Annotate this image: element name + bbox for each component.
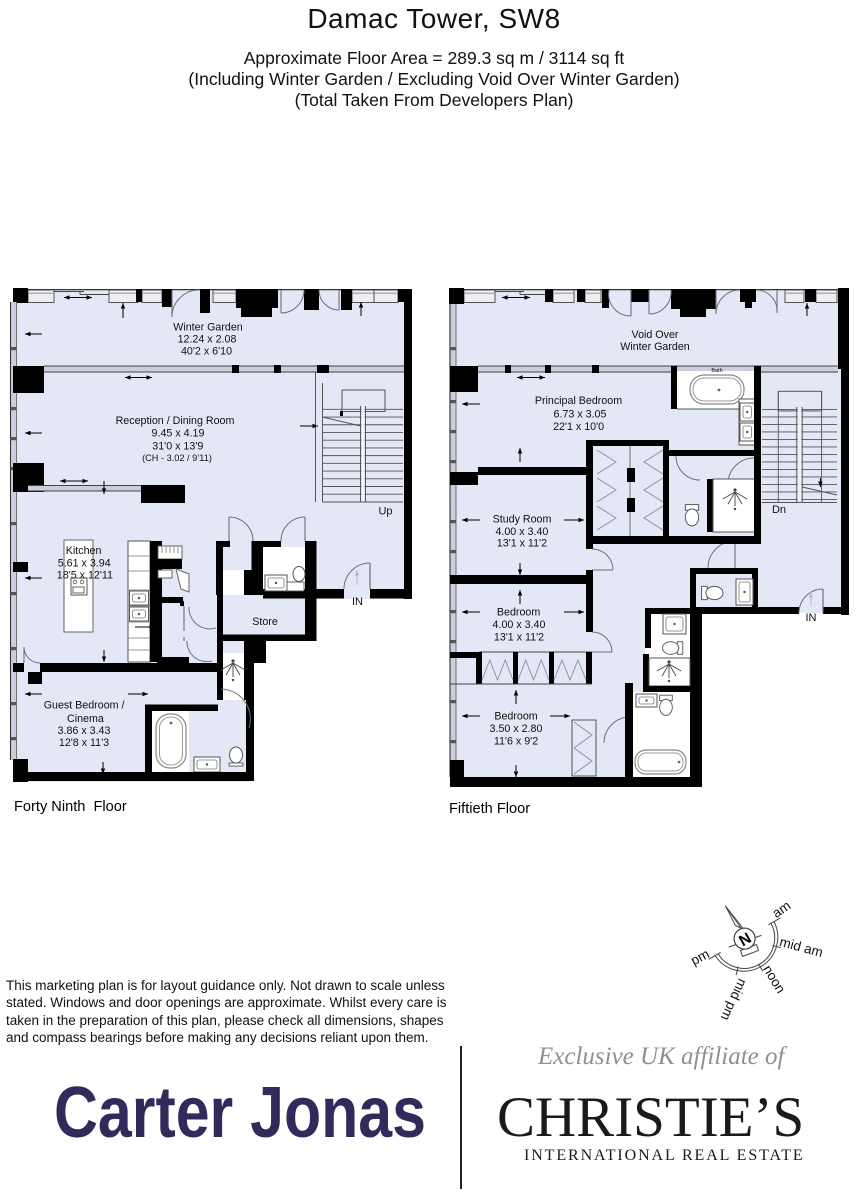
svg-text:12.24 x 2.08: 12.24 x 2.08 [178,334,237,346]
svg-text:Reception / Dining Room: Reception / Dining Room [116,415,235,427]
svg-text:22'1 x 10'0: 22'1 x 10'0 [553,421,604,433]
svg-text:Cinema: Cinema [67,713,104,725]
svg-text:4.00 x 3.40: 4.00 x 3.40 [493,619,546,631]
svg-text:Guest Bedroom /: Guest Bedroom / [44,699,125,711]
svg-text:mid pm: mid pm [718,976,750,1022]
svg-text:Void Over: Void Over [632,329,679,341]
svg-text:12'8 x 11'3: 12'8 x 11'3 [59,737,109,749]
svg-text:Winter Garden: Winter Garden [620,341,690,353]
svg-text:Forty Ninth Floor: Forty Ninth Floor [14,799,127,815]
svg-text:Dn: Dn [772,504,786,516]
svg-text:11'6 x 9'2: 11'6 x 9'2 [494,736,538,748]
svg-text:13'1 x 11'2: 13'1 x 11'2 [494,632,544,644]
svg-text:Bedroom: Bedroom [497,607,540,619]
svg-text:9.45 x 4.19: 9.45 x 4.19 [152,428,205,440]
svg-text:Store: Store [252,616,278,628]
svg-text:mid am: mid am [778,934,825,960]
svg-text:pm: pm [688,946,712,968]
svg-text:Up: Up [378,506,392,518]
svg-text:3.50 x 2.80: 3.50 x 2.80 [490,723,543,735]
svg-text:6.73 x 3.05: 6.73 x 3.05 [554,409,607,421]
svg-text:31'0 x 13'9: 31'0 x 13'9 [152,440,203,452]
svg-text:Study Room: Study Room [493,514,552,526]
svg-text:noon: noon [760,962,788,995]
svg-text:13'1 x 11'2: 13'1 x 11'2 [497,538,547,550]
svg-text:Kitchen: Kitchen [66,545,102,557]
svg-text:(CH - 3.02 / 9’11): (CH - 3.02 / 9’11) [142,453,212,463]
svg-text:IN: IN [806,612,817,624]
svg-text:18'5 x 12'11: 18'5 x 12'11 [57,570,113,582]
svg-text:IN: IN [352,596,363,608]
svg-text:Bedroom: Bedroom [494,711,537,723]
svg-text:Fiftieth Floor: Fiftieth Floor [449,801,530,817]
svg-text:Winter Garden: Winter Garden [173,322,243,334]
svg-text:3.86 x 3.43: 3.86 x 3.43 [58,725,111,737]
svg-text:40'2 x 6'10: 40'2 x 6'10 [181,346,232,358]
svg-text:Bath: Bath [711,368,722,374]
svg-text:5.61 x 3.94: 5.61 x 3.94 [58,557,111,569]
svg-text:4.00 x 3.40: 4.00 x 3.40 [495,526,548,538]
svg-text:am: am [769,898,793,921]
svg-text:Principal Bedroom: Principal Bedroom [535,395,622,407]
